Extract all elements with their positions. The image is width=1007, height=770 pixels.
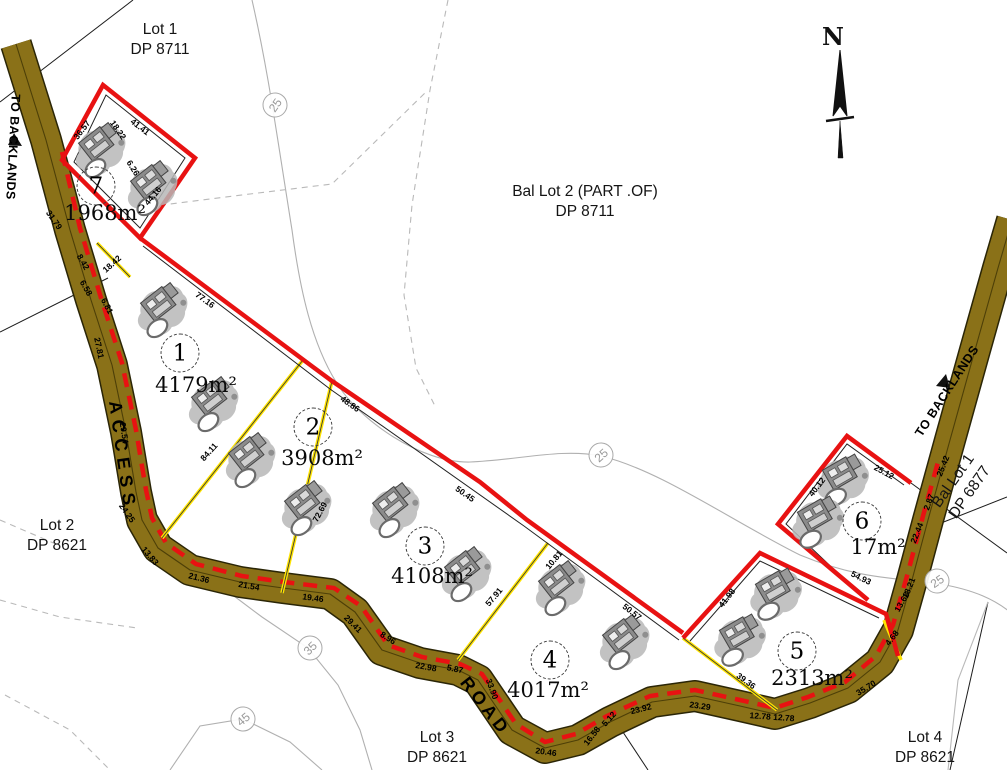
lot-number: 3 — [406, 527, 445, 566]
north-arrow — [826, 50, 854, 158]
plan-drawing — [0, 0, 1007, 770]
lot-area-label: 4179m² — [155, 373, 237, 397]
parcel-label: Lot 4DP 8621 — [895, 728, 955, 768]
lot-number: 5 — [778, 632, 817, 671]
dimension-label: 29.54 — [118, 422, 129, 444]
lot-number: 4 — [531, 641, 570, 680]
lot-area-label: 4017m² — [507, 678, 589, 702]
lot-area-label: 3908m² — [281, 446, 363, 470]
parcel-label: Lot 3DP 8621 — [407, 728, 467, 768]
parcel-label: Lot 1DP 8711 — [131, 20, 190, 60]
lot-number: 7 — [77, 167, 116, 206]
parcel-label: Lot 2DP 8621 — [27, 516, 87, 556]
cadastral-boundary-lines — [0, 0, 1007, 770]
lot-area-label: 1968m² — [64, 201, 146, 225]
lot-area-label: 4108m² — [391, 564, 473, 588]
parcel-label: Bal Lot 2 (PART .OF)DP 8711 — [512, 182, 658, 222]
lot-area-label: 2313m² — [771, 666, 853, 690]
north-label: N — [822, 22, 844, 51]
lot-number: 1 — [161, 334, 200, 373]
subdivision-plan: ACCESS ROAD TO BACKLANDS TO BACKLANDS N … — [0, 0, 1007, 770]
lot-area-label: 17m² — [850, 535, 905, 559]
lot-number: 2 — [294, 408, 333, 447]
